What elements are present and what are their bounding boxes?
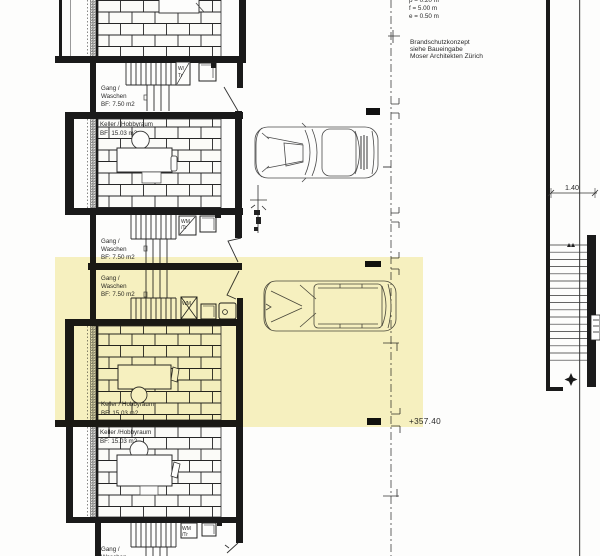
svg-text:/Tr: /Tr [181, 225, 187, 231]
svg-text:Gang /: Gang / [101, 85, 120, 92]
svg-text:1.40: 1.40 [565, 183, 579, 192]
svg-text:Gang /: Gang / [101, 238, 120, 245]
svg-text:f = 5.00 m: f = 5.00 m [409, 5, 437, 12]
svg-text:BF: 7.50 m2: BF: 7.50 m2 [101, 101, 135, 108]
svg-text:BF: 15.03 m2: BF: 15.03 m2 [100, 130, 138, 137]
svg-text:siehe Baueingabe: siehe Baueingabe [410, 46, 463, 53]
svg-text:Keller / Hobbyraum: Keller / Hobbyraum [100, 121, 153, 128]
svg-text:Tr: Tr [178, 73, 183, 79]
svg-text:Moser Architekten Zürich: Moser Architekten Zürich [410, 53, 483, 60]
svg-text:Waschen: Waschen [101, 93, 127, 100]
svg-text:Gang /: Gang / [101, 546, 120, 553]
svg-text:e = 0.50 m: e = 0.50 m [409, 13, 439, 20]
svg-text:p = 0.20 m: p = 0.20 m [409, 0, 439, 4]
svg-text:/Tr: /Tr [182, 532, 188, 538]
svg-text:Waschen: Waschen [101, 246, 127, 253]
svg-text:Brandschutzkonzept: Brandschutzkonzept [410, 39, 470, 46]
svg-text:W/: W/ [178, 66, 185, 72]
svg-text:Keller /Hobbyraum: Keller /Hobbyraum [100, 429, 151, 436]
